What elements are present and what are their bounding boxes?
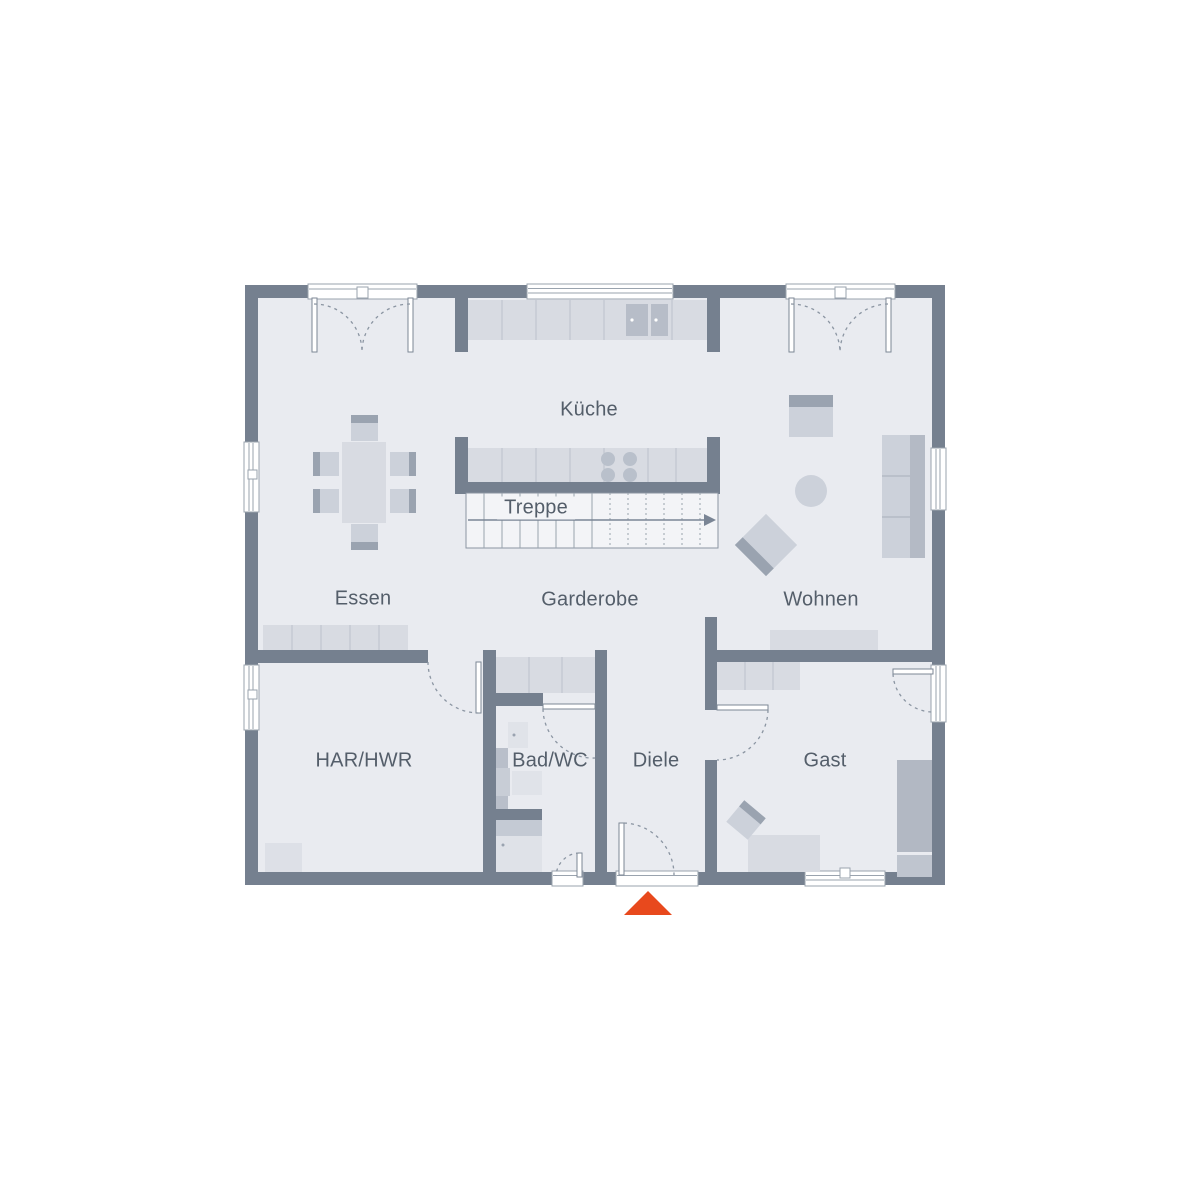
- kitchen-counter: [468, 300, 707, 340]
- fridge-icon: [626, 304, 648, 336]
- door-post: [835, 287, 846, 298]
- window-handle: [248, 470, 257, 479]
- sideboard: [263, 625, 408, 650]
- wall-segment: [496, 809, 542, 820]
- desk: [748, 835, 820, 872]
- wall-segment: [932, 285, 945, 885]
- entrance-door-opening: [616, 871, 698, 886]
- door-post: [357, 287, 368, 298]
- room-label-gast: Gast: [803, 750, 846, 773]
- shower-tray: [496, 836, 542, 872]
- door-leaf: [717, 705, 768, 710]
- dining-table: [342, 442, 386, 523]
- floor-plan: Küche Essen Garderobe Wohnen HAR/HWR Bad…: [0, 0, 1200, 1200]
- toilet-icon: [512, 771, 542, 795]
- room-label-bad-wc: Bad/WC: [512, 750, 588, 773]
- room-label-essen: Essen: [335, 588, 392, 611]
- window: [931, 448, 946, 510]
- window-handle: [840, 868, 850, 878]
- shelf: [717, 662, 800, 690]
- wall-segment: [595, 650, 607, 872]
- room-label-har-hwr: HAR/HWR: [316, 750, 413, 773]
- wall-segment: [705, 617, 717, 710]
- sideboard: [770, 630, 878, 650]
- wall-segment: [455, 482, 720, 494]
- wardrobe-closet: [496, 657, 595, 693]
- wall-segment: [717, 650, 932, 662]
- door-leaf: [789, 298, 794, 352]
- door-leaf: [543, 704, 595, 709]
- shower-head-area: [496, 820, 542, 836]
- coffee-table: [795, 475, 827, 507]
- kitchen-island: [468, 448, 707, 482]
- room-label-garderobe: Garderobe: [541, 589, 638, 612]
- appliance: [265, 843, 302, 872]
- room-label-kueche: Küche: [560, 399, 618, 422]
- room-label-diele: Diele: [633, 750, 680, 773]
- bed: [897, 760, 932, 852]
- entrance-marker-icon: [624, 891, 672, 915]
- room-label-wohnen: Wohnen: [783, 589, 858, 612]
- sink-icon: [508, 722, 528, 748]
- window-handle: [248, 690, 257, 699]
- wall-segment: [258, 650, 428, 663]
- bed-foot: [897, 855, 932, 877]
- wall-segment: [455, 298, 468, 352]
- door-leaf: [312, 298, 317, 352]
- oven-icon: [651, 304, 668, 336]
- wall-segment: [707, 298, 720, 352]
- door-leaf: [408, 298, 413, 352]
- door-leaf: [476, 662, 481, 713]
- wall-segment: [705, 760, 717, 872]
- window: [527, 284, 673, 299]
- door-leaf: [577, 853, 582, 877]
- door-leaf: [893, 669, 933, 674]
- wall-segment: [245, 285, 258, 885]
- toilet-tank: [496, 768, 510, 796]
- wall-segment: [483, 693, 543, 706]
- door-leaf: [619, 823, 624, 875]
- door-leaf: [886, 298, 891, 352]
- wall-segment: [483, 650, 496, 872]
- room-label-treppe: Treppe: [497, 497, 575, 520]
